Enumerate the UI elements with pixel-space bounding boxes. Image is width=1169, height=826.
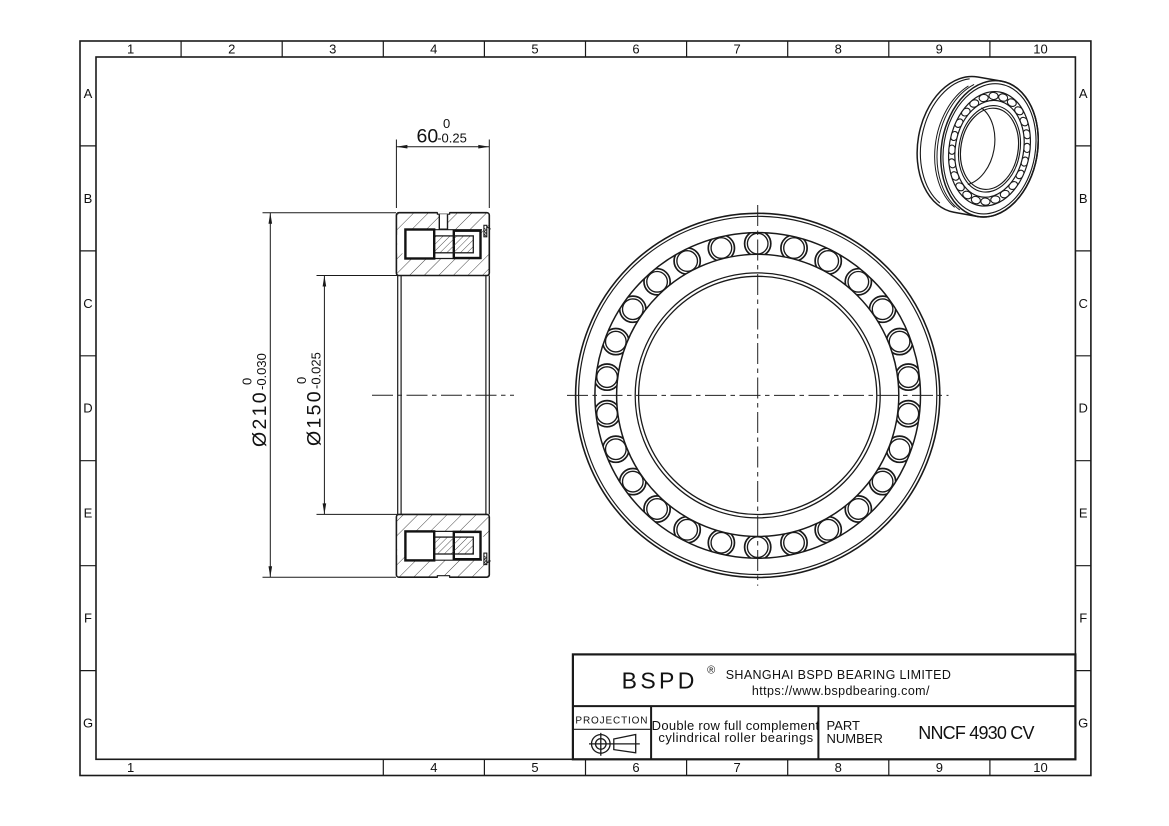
svg-text:A: A bbox=[84, 86, 93, 101]
svg-text:-0.030: -0.030 bbox=[254, 353, 269, 390]
svg-text:G: G bbox=[1078, 716, 1088, 731]
svg-text:0: 0 bbox=[294, 377, 309, 384]
svg-text:-0.25: -0.25 bbox=[437, 131, 467, 146]
svg-text:E: E bbox=[84, 506, 93, 521]
svg-text:Ø210: Ø210 bbox=[249, 390, 271, 447]
svg-text:Ø150: Ø150 bbox=[303, 389, 325, 446]
svg-text:1: 1 bbox=[127, 760, 134, 775]
svg-text:SHANGHAI BSPD BEARING LIMITED: SHANGHAI BSPD BEARING LIMITED bbox=[726, 668, 951, 682]
svg-text:4: 4 bbox=[430, 42, 437, 57]
svg-text:7: 7 bbox=[733, 760, 740, 775]
svg-text:F: F bbox=[1079, 611, 1087, 626]
svg-text:6: 6 bbox=[632, 760, 639, 775]
svg-text:BSPD: BSPD bbox=[622, 668, 698, 694]
svg-text:B: B bbox=[84, 191, 93, 206]
svg-text:9: 9 bbox=[936, 760, 943, 775]
svg-text:D: D bbox=[1079, 401, 1088, 416]
svg-text:C: C bbox=[83, 296, 92, 311]
svg-text:-0.025: -0.025 bbox=[308, 352, 323, 389]
svg-text:E: E bbox=[1079, 506, 1088, 521]
svg-text:NUMBER: NUMBER bbox=[827, 731, 883, 746]
svg-text:0: 0 bbox=[240, 378, 255, 385]
svg-text:8: 8 bbox=[835, 42, 842, 57]
svg-text:7: 7 bbox=[733, 42, 740, 57]
svg-text:9: 9 bbox=[936, 42, 943, 57]
svg-text:5: 5 bbox=[531, 42, 538, 57]
svg-text:10: 10 bbox=[1033, 760, 1047, 775]
svg-text:NNCF 4930 CV: NNCF 4930 CV bbox=[918, 723, 1034, 743]
svg-text:5: 5 bbox=[531, 760, 538, 775]
svg-text:F: F bbox=[84, 611, 92, 626]
svg-text:8: 8 bbox=[835, 760, 842, 775]
svg-text:B: B bbox=[1079, 191, 1088, 206]
svg-text:PROJECTION: PROJECTION bbox=[575, 715, 648, 726]
svg-text:A: A bbox=[1079, 86, 1088, 101]
svg-text:0: 0 bbox=[443, 116, 450, 131]
svg-text:1: 1 bbox=[127, 42, 134, 57]
svg-text:C: C bbox=[1079, 296, 1088, 311]
svg-text:10: 10 bbox=[1033, 42, 1047, 57]
svg-text:cylindrical roller bearings: cylindrical roller bearings bbox=[658, 730, 813, 745]
svg-text:®: ® bbox=[707, 665, 715, 677]
svg-text:4: 4 bbox=[430, 760, 437, 775]
svg-text:2: 2 bbox=[228, 42, 235, 57]
svg-text:D: D bbox=[83, 401, 92, 416]
svg-text:60: 60 bbox=[417, 126, 439, 148]
svg-text:3: 3 bbox=[329, 42, 336, 57]
svg-text:6: 6 bbox=[632, 42, 639, 57]
svg-text:G: G bbox=[83, 716, 93, 731]
svg-text:https://www.bspdbearing.com/: https://www.bspdbearing.com/ bbox=[752, 684, 930, 698]
